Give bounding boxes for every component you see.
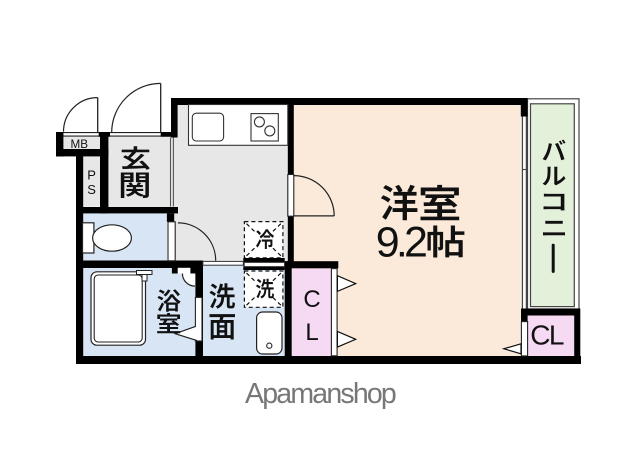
svg-text:CL: CL [530, 319, 564, 350]
svg-text:L: L [305, 319, 318, 346]
svg-text:Apamanshop: Apamanshop [245, 378, 396, 410]
svg-text:P: P [87, 167, 96, 182]
svg-text:9.2: 9.2 [376, 219, 426, 267]
svg-text:C: C [303, 286, 320, 313]
svg-text:MB: MB [71, 138, 89, 151]
svg-text:S: S [87, 182, 96, 197]
